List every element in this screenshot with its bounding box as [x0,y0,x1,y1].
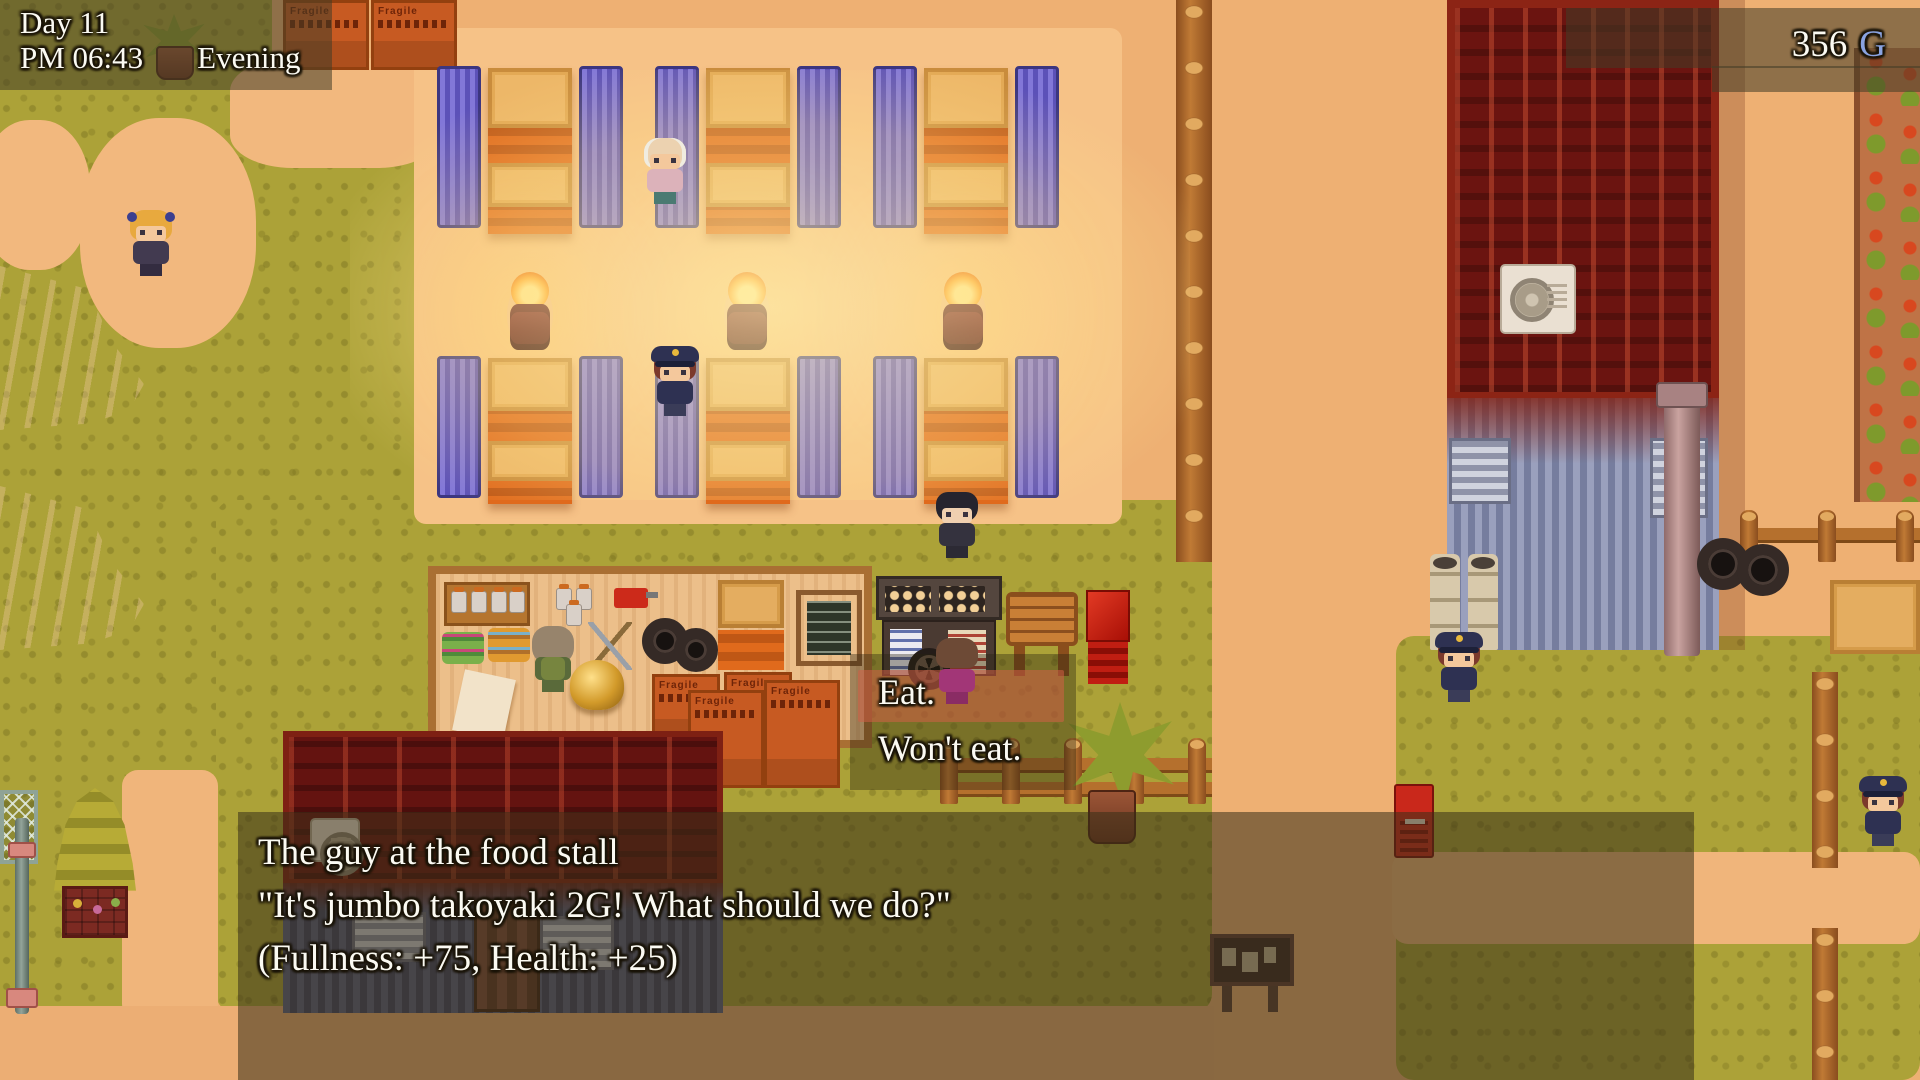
cargo-crate: Fragile [371,0,457,70]
clock-label: PM 06:43 [20,41,143,76]
gold-unit: G [1859,24,1886,65]
gold-amount: 356 [1792,24,1848,65]
log-pole-fence [1176,0,1212,562]
dialogue-text: The guy at the food stall "It's jumbo ta… [258,832,1558,991]
stall-curtain [873,66,917,228]
crate-markings [695,710,757,718]
stall-curtain [873,356,917,498]
dialogue-line: The guy at the food stall [258,832,1558,885]
npc-old-man [640,138,690,206]
gold-hud-backdrop [1712,66,1920,92]
period-label: Evening [197,41,300,76]
tire-stack [1697,530,1791,602]
npc-food-stall-guy [932,492,982,560]
stall-curtain [797,356,841,498]
cap-badge-icon [672,349,679,356]
stall-counter [924,358,1008,504]
paper-sheet [452,669,516,740]
log-pole-fence [1812,928,1838,1080]
stall-counter [488,68,572,234]
npc-stall-vendor [528,626,578,694]
crate-markings [378,20,450,28]
vegetable-garden [1854,48,1920,502]
stall-counter [488,358,572,504]
clothes-pile [442,632,484,664]
pipe-cap [1656,382,1708,408]
market-stall-booth [873,66,1059,234]
dialogue-line: "It's jumbo takoyaki 2G! What should we … [258,885,1558,938]
log-pole-fence [1812,672,1838,868]
fire-barrel [940,280,986,350]
cargo-crate: Fragile [764,680,840,788]
npc-blonde-girl [126,210,176,278]
crate-label: Fragile [695,696,735,707]
fire-barrel [724,280,770,350]
npc-police-officer [1434,636,1484,704]
red-banner-stand [1086,590,1130,684]
wooden-crate [718,580,784,628]
npc-police-officer [650,350,700,418]
stall-curtain [579,356,623,498]
window-shutter [1449,438,1511,504]
fire-barrel [507,280,553,350]
gold-display: 356G [1792,24,1886,65]
pole-base [6,988,38,1008]
choice-option-eat[interactable]: Eat. [878,672,1138,724]
wooden-crate [1830,580,1920,654]
stall-curtain [1015,356,1059,498]
drain-pipe [1664,390,1700,656]
market-stall-booth [437,356,623,504]
stall-curtain [437,66,481,228]
stall-curtain [437,356,481,498]
npc-police-officer [1858,780,1908,848]
ac-unit [1500,264,1576,334]
cap-badge-icon [1880,779,1887,786]
dirt-patch [0,120,90,270]
pole-base [8,842,36,858]
stall-counter [706,358,790,504]
plank-stack [718,630,784,670]
jar-group [554,584,606,626]
stall-counter [924,68,1008,234]
golden-helmet [570,660,624,710]
path-bottom-left [122,770,218,1020]
stall-counter [706,68,790,234]
drill-tool [614,588,648,608]
dialogue-line: (Fullness: +75, Health: +25) [258,938,1558,991]
crate-label: Fragile [771,686,811,697]
stall-curtain [1015,66,1059,228]
brick-planter [62,886,128,938]
market-stall-booth [873,356,1059,504]
choice-option-wont-eat[interactable]: Won't eat. [878,728,1138,780]
jar-shelf [444,582,530,626]
stall-curtain [797,66,841,228]
game-viewport: Fragile Fragile [0,0,1920,1080]
crate-markings [771,700,833,708]
clothes-pile [488,628,530,662]
stall-curtain [579,66,623,228]
market-stall-booth [437,66,623,234]
tire-pile [642,612,720,676]
crate-label: Fragile [378,6,418,17]
cap-badge-icon [1456,635,1463,642]
day-label: Day 11 [20,6,300,41]
time-display: Day 11 PM 06:43 Evening [20,6,300,75]
